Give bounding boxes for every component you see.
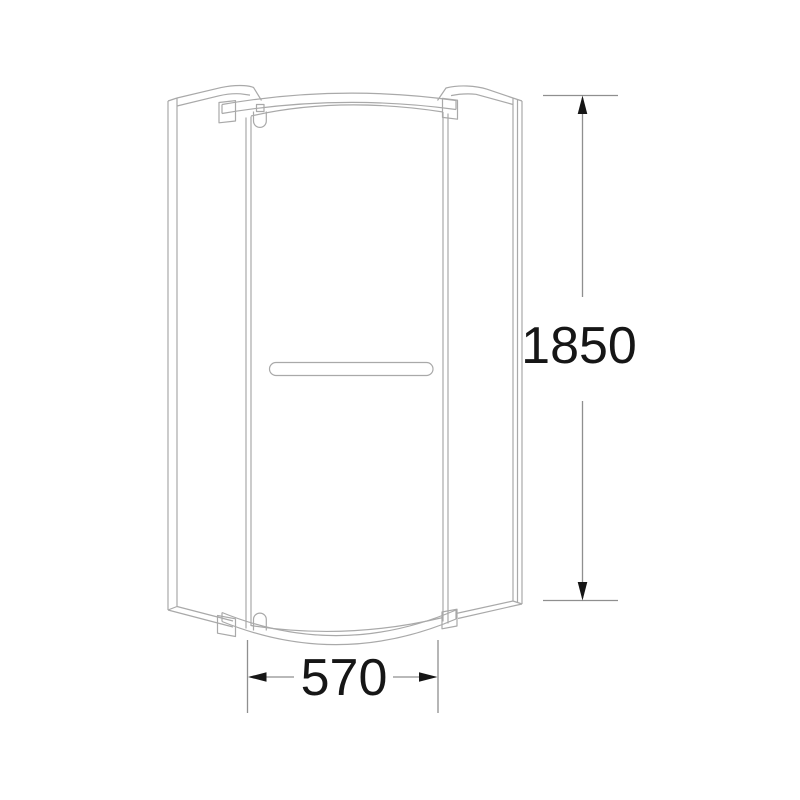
arrow-right-icon: [419, 672, 438, 682]
right-side-panel-bottom-inner-edge: [456, 601, 513, 614]
shower-enclosure-drawing: [168, 85, 522, 644]
left-wall-profile: [168, 98, 177, 610]
left-side-panel-top-edge: [177, 85, 262, 100]
arrow-left-icon: [248, 672, 267, 682]
height-dimension-value: 1850: [521, 317, 637, 375]
bottom-rail-ends: [222, 610, 456, 622]
arrow-down-icon: [578, 582, 588, 601]
width-dimension: 570: [248, 640, 439, 713]
right-side-panel: [438, 86, 523, 619]
door-handle: [270, 363, 434, 376]
left-side-panel: [168, 85, 262, 627]
door-left-stile: [246, 117, 251, 629]
door-right-stile: [443, 112, 448, 624]
left-wall-profile-outline: [168, 98, 177, 610]
technical-drawing-canvas: 1850 570: [0, 0, 800, 800]
width-dimension-value: 570: [301, 649, 388, 707]
door-glass-top-edge: [251, 105, 443, 116]
arrow-up-icon: [578, 96, 588, 115]
sliding-door: [246, 105, 448, 632]
height-dimension: 1850: [521, 96, 637, 601]
right-side-panel-top-edge: [438, 86, 514, 101]
top-rail: [219, 93, 458, 123]
drawing-page: 1850 570: [0, 0, 800, 800]
